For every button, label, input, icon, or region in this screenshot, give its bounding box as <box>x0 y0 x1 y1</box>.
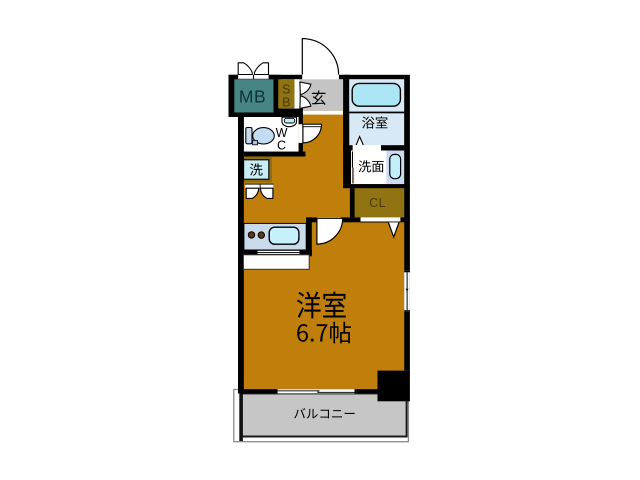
svg-text:CL: CL <box>369 196 386 210</box>
svg-text:S: S <box>282 83 290 97</box>
svg-text:C: C <box>277 139 286 153</box>
svg-text:B: B <box>282 96 290 110</box>
svg-text:MB: MB <box>239 87 266 107</box>
